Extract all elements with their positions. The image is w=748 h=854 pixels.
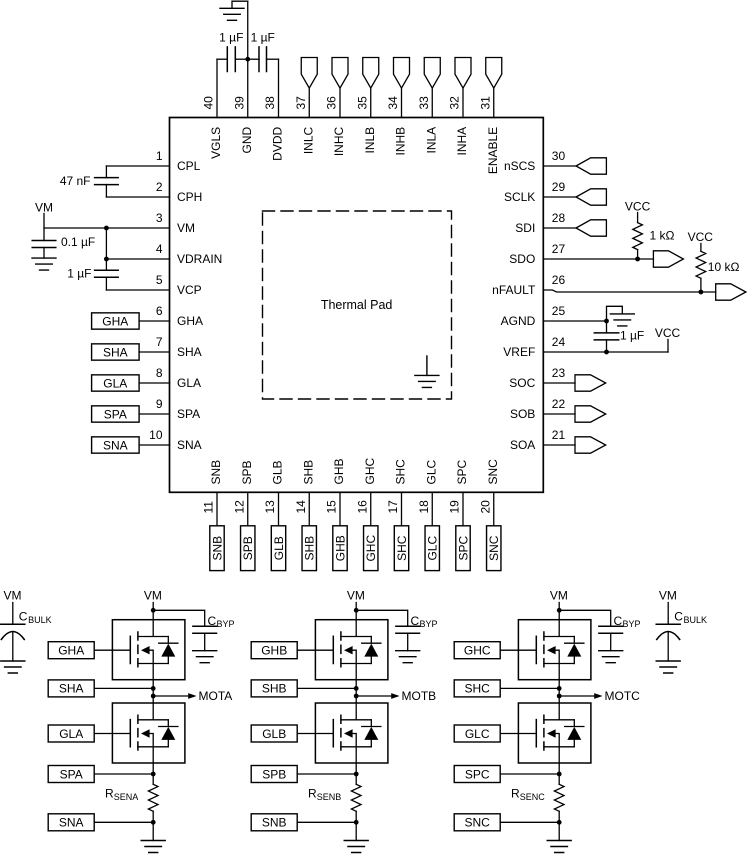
svg-text:CPH: CPH <box>177 190 202 204</box>
svg-text:GHC: GHC <box>464 644 491 658</box>
svg-text:26: 26 <box>552 273 566 287</box>
svg-text:28: 28 <box>552 211 566 225</box>
svg-text:16: 16 <box>355 500 369 514</box>
svg-text:C: C <box>411 614 420 628</box>
svg-text:1 µF: 1 µF <box>67 267 91 281</box>
svg-text:GLC: GLC <box>426 536 440 561</box>
svg-text:12: 12 <box>232 500 246 514</box>
svg-text:ENABLE: ENABLE <box>486 127 500 174</box>
svg-text:SHC: SHC <box>465 682 491 696</box>
svg-text:GLC: GLC <box>424 459 438 484</box>
svg-text:SHA: SHA <box>103 345 128 359</box>
svg-text:1: 1 <box>156 149 163 163</box>
svg-text:VCC: VCC <box>655 326 681 340</box>
svg-text:3: 3 <box>156 211 163 225</box>
svg-text:5: 5 <box>156 273 163 287</box>
svg-text:7: 7 <box>156 335 163 349</box>
svg-text:C: C <box>674 610 683 624</box>
svg-text:SNB: SNB <box>262 816 287 830</box>
svg-text:GLA: GLA <box>177 376 201 390</box>
svg-text:GHA: GHA <box>58 644 84 658</box>
svg-text:MOTB: MOTB <box>402 689 437 703</box>
svg-text:BULK: BULK <box>684 615 708 625</box>
svg-text:BYP: BYP <box>623 619 641 629</box>
svg-text:40: 40 <box>202 96 216 110</box>
svg-text:R: R <box>511 787 520 801</box>
svg-text:SHC: SHC <box>394 459 408 485</box>
svg-text:SOC: SOC <box>509 376 535 390</box>
svg-text:SPB: SPB <box>241 536 255 560</box>
svg-text:SNC: SNC <box>487 535 501 561</box>
svg-text:6: 6 <box>156 304 163 318</box>
svg-text:8: 8 <box>156 366 163 380</box>
svg-text:10 kΩ: 10 kΩ <box>708 260 740 274</box>
svg-text:20: 20 <box>478 500 492 514</box>
svg-text:22: 22 <box>552 397 566 411</box>
svg-text:1 µF: 1 µF <box>251 31 275 45</box>
svg-text:SHC: SHC <box>395 535 409 561</box>
svg-text:GLC: GLC <box>465 727 490 741</box>
svg-text:C: C <box>208 614 217 628</box>
svg-text:INHA: INHA <box>455 127 469 156</box>
svg-text:4: 4 <box>156 242 163 256</box>
svg-text:39: 39 <box>232 96 246 110</box>
svg-text:19: 19 <box>448 500 462 514</box>
svg-text:34: 34 <box>386 96 400 110</box>
svg-text:VGLS: VGLS <box>209 127 223 159</box>
svg-text:0.1 µF: 0.1 µF <box>61 235 95 249</box>
svg-text:15: 15 <box>325 500 339 514</box>
svg-text:INLC: INLC <box>301 126 315 154</box>
svg-text:23: 23 <box>552 366 566 380</box>
svg-text:27: 27 <box>552 242 566 256</box>
svg-text:VM: VM <box>144 589 162 603</box>
svg-text:18: 18 <box>417 500 431 514</box>
svg-text:25: 25 <box>552 304 566 318</box>
svg-text:R: R <box>308 787 317 801</box>
svg-text:GHC: GHC <box>364 535 378 562</box>
svg-text:VREF: VREF <box>503 345 535 359</box>
svg-text:VCC: VCC <box>625 200 651 214</box>
svg-text:INHC: INHC <box>332 126 346 156</box>
svg-text:SNA: SNA <box>59 816 84 830</box>
svg-text:13: 13 <box>263 500 277 514</box>
svg-text:SPA: SPA <box>104 407 127 421</box>
svg-text:nFAULT: nFAULT <box>492 283 536 297</box>
svg-text:SHA: SHA <box>177 345 202 359</box>
svg-text:SNA: SNA <box>177 438 202 452</box>
svg-text:47 nF: 47 nF <box>60 174 91 188</box>
svg-text:1 kΩ: 1 kΩ <box>650 229 675 243</box>
svg-text:32: 32 <box>448 96 462 110</box>
svg-text:GHC: GHC <box>363 458 377 485</box>
svg-text:MOTA: MOTA <box>199 689 233 703</box>
svg-text:C: C <box>19 610 28 624</box>
svg-text:SOA: SOA <box>510 438 535 452</box>
svg-text:AGND: AGND <box>501 314 536 328</box>
svg-text:1 µF: 1 µF <box>219 31 243 45</box>
svg-text:30: 30 <box>552 149 566 163</box>
svg-text:SPC: SPC <box>456 536 470 561</box>
svg-text:SHB: SHB <box>303 536 317 561</box>
svg-text:SHA: SHA <box>59 682 84 696</box>
svg-text:R: R <box>105 787 114 801</box>
svg-text:1 µF: 1 µF <box>620 329 644 343</box>
svg-text:MOTC: MOTC <box>605 689 641 703</box>
svg-text:SNB: SNB <box>210 536 224 561</box>
svg-text:24: 24 <box>552 335 566 349</box>
svg-text:GHB: GHB <box>261 644 287 658</box>
svg-text:VCC: VCC <box>688 230 714 244</box>
svg-text:33: 33 <box>417 96 431 110</box>
svg-text:BULK: BULK <box>28 615 52 625</box>
svg-text:VDRAIN: VDRAIN <box>177 252 222 266</box>
svg-text:SNC: SNC <box>465 816 491 830</box>
svg-text:9: 9 <box>156 397 163 411</box>
svg-text:36: 36 <box>325 96 339 110</box>
svg-text:SPB: SPB <box>240 460 254 484</box>
svg-text:GLB: GLB <box>262 727 286 741</box>
svg-text:SPC: SPC <box>455 459 469 484</box>
svg-text:SOB: SOB <box>510 407 535 421</box>
svg-text:SHB: SHB <box>301 460 315 485</box>
svg-text:BYP: BYP <box>217 619 235 629</box>
svg-text:VM: VM <box>347 589 365 603</box>
svg-text:INLB: INLB <box>363 127 377 154</box>
svg-text:37: 37 <box>294 96 308 110</box>
svg-text:GND: GND <box>240 126 254 153</box>
svg-text:GLA: GLA <box>59 727 83 741</box>
svg-text:11: 11 <box>202 501 216 514</box>
svg-text:SDO: SDO <box>509 252 535 266</box>
svg-text:SPC: SPC <box>465 767 490 781</box>
svg-text:VM: VM <box>659 589 677 603</box>
svg-text:C: C <box>614 614 623 628</box>
svg-text:SENA: SENA <box>114 792 139 802</box>
svg-text:SPA: SPA <box>60 767 83 781</box>
svg-text:VM: VM <box>550 589 568 603</box>
svg-text:VM: VM <box>4 589 22 603</box>
svg-text:GHB: GHB <box>333 535 347 561</box>
svg-text:GHB: GHB <box>332 458 346 484</box>
svg-text:BYP: BYP <box>420 619 438 629</box>
svg-text:GLA: GLA <box>103 376 127 390</box>
svg-text:VM: VM <box>177 221 195 235</box>
svg-text:SDI: SDI <box>515 221 535 235</box>
svg-text:SENC: SENC <box>520 792 546 802</box>
svg-text:SHB: SHB <box>262 682 287 696</box>
svg-text:29: 29 <box>552 180 566 194</box>
svg-text:Thermal Pad: Thermal Pad <box>321 298 393 312</box>
svg-text:31: 31 <box>478 96 492 110</box>
svg-text:INHB: INHB <box>394 127 408 156</box>
svg-text:38: 38 <box>263 96 277 110</box>
svg-text:14: 14 <box>294 500 308 514</box>
svg-text:17: 17 <box>386 500 400 514</box>
svg-text:CPL: CPL <box>177 159 201 173</box>
svg-text:SNC: SNC <box>486 459 500 485</box>
svg-text:SNB: SNB <box>209 460 223 485</box>
svg-text:VM: VM <box>35 201 53 215</box>
svg-text:SCLK: SCLK <box>504 190 535 204</box>
svg-text:GLB: GLB <box>272 536 286 560</box>
svg-text:21: 21 <box>552 428 566 442</box>
svg-text:DVDD: DVDD <box>271 126 285 160</box>
svg-text:GHA: GHA <box>102 314 128 328</box>
svg-text:10: 10 <box>149 428 163 442</box>
svg-text:GHA: GHA <box>177 314 203 328</box>
svg-text:35: 35 <box>355 96 369 110</box>
svg-text:SNA: SNA <box>103 438 128 452</box>
svg-text:VCP: VCP <box>177 283 202 297</box>
svg-text:nSCS: nSCS <box>504 159 535 173</box>
svg-text:SPB: SPB <box>262 767 286 781</box>
svg-text:SPA: SPA <box>177 407 200 421</box>
svg-text:SENB: SENB <box>317 792 342 802</box>
svg-text:GLB: GLB <box>271 460 285 484</box>
svg-text:INLA: INLA <box>424 127 438 154</box>
svg-text:2: 2 <box>156 180 163 194</box>
